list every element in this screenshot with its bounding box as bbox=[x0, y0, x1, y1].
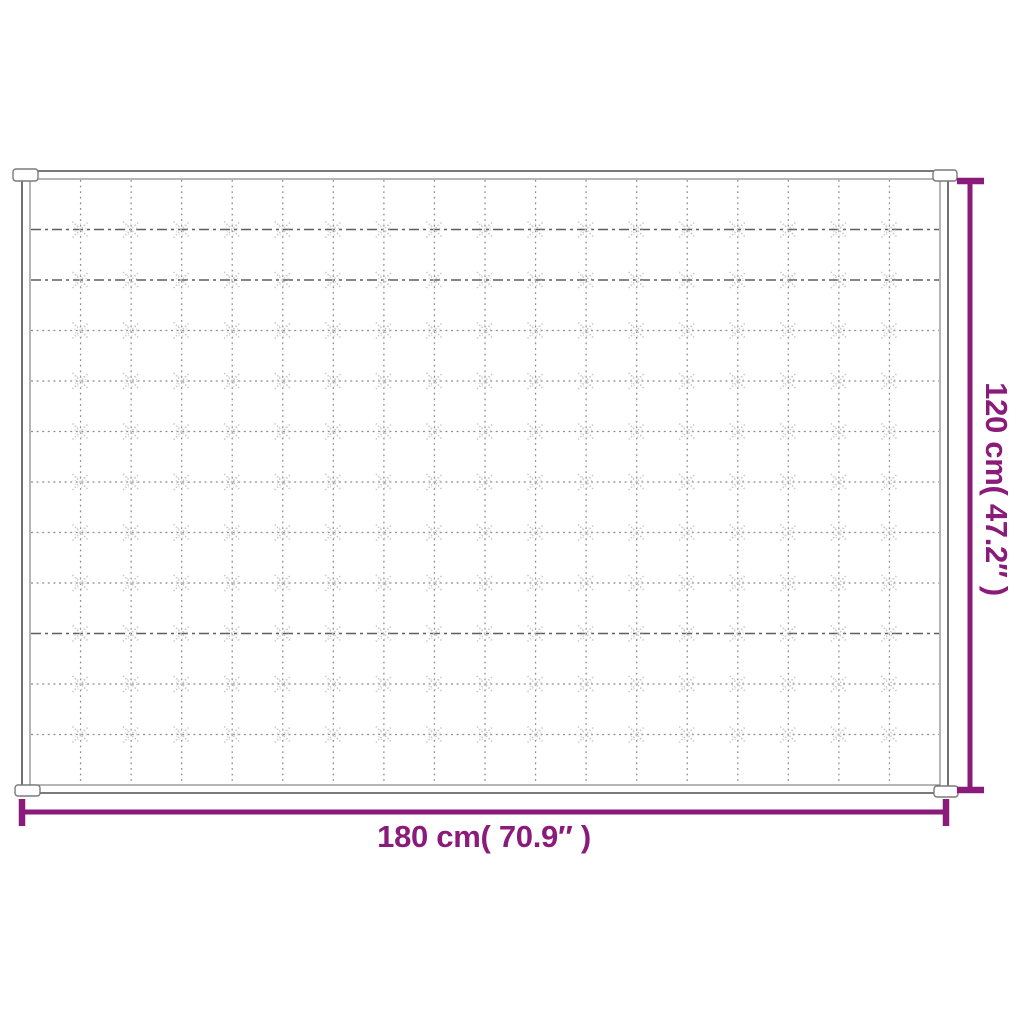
corner-tab bbox=[933, 170, 957, 181]
blanket-illustration bbox=[0, 0, 1024, 1024]
height-dimension-label: 120 cm( 47.2″ ) bbox=[979, 382, 1013, 596]
corner-tab bbox=[15, 785, 40, 796]
corner-tab bbox=[934, 786, 958, 797]
corner-tab bbox=[13, 169, 38, 181]
page-canvas: 180 cm( 70.9″ ) 120 cm( 47.2″ ) bbox=[0, 0, 1024, 1024]
width-dimension-label: 180 cm( 70.9″ ) bbox=[22, 820, 946, 854]
